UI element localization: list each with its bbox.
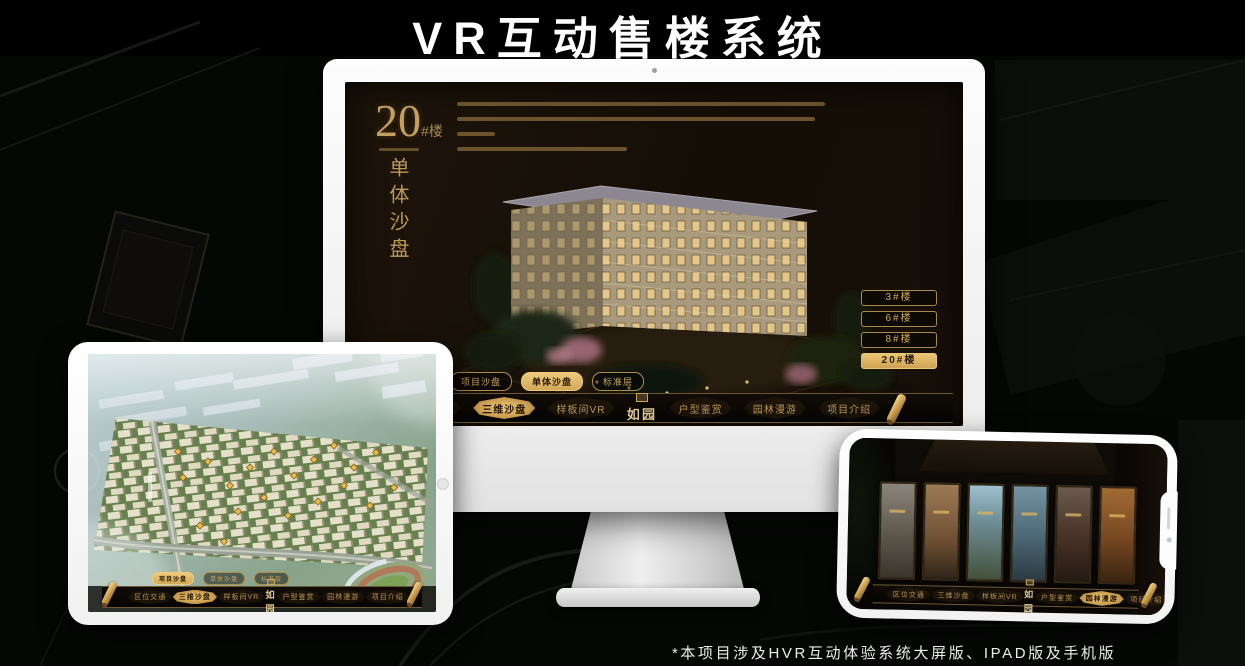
tablet-tab-single-sandtable[interactable]: 单体沙盘 [203,572,245,585]
tab-project-sandtable[interactable]: 项目沙盘 [450,372,512,391]
tablet-nav-showroom-vr[interactable]: 样板间VR [217,590,265,605]
monitor-stand-base [556,588,760,607]
nav-unit-gallery[interactable]: 户型鉴赏 [670,397,732,419]
brand-logo: 如园 [627,393,658,422]
interior-ceiling-illustration [919,439,1110,475]
phone-navbar: 区位交通 三维沙盘 样板间VR 如园 户型鉴赏 园林漫游 项目介绍 [872,584,1138,609]
tablet-brand-logo: 如园 [266,579,277,612]
scene-card-4-label [1021,512,1037,515]
building-selector: 3#楼 6#楼 8#楼 20#楼 [861,290,937,374]
stage: VR互动售楼系统 [0,0,1245,666]
building-button-6[interactable]: 6#楼 [861,311,937,327]
tab-standard-floor[interactable]: 标准层 [592,372,644,391]
phone-logo-text: 如园 [1024,586,1035,614]
building-button-3[interactable]: 3#楼 [861,290,937,306]
tablet-tab-project-sandtable[interactable]: 项目沙盘 [152,572,194,585]
scene-card-6[interactable] [1098,487,1135,584]
description-text-lines [457,102,825,162]
tablet-navbar: 区位交通 三维沙盘 样板间VR 如园 户型鉴赏 园林漫游 项目介绍 [102,586,422,608]
building-number-suffix: #楼 [421,123,443,139]
building-button-8[interactable]: 8#楼 [861,332,937,348]
monitor-stand-neck [570,511,745,593]
tablet-logo-seal-icon [267,579,275,585]
logo-seal-icon [636,393,648,402]
phone-camera-dot [1166,537,1171,542]
scroll-handle-icon[interactable] [886,392,907,424]
scene-card-gallery [847,482,1167,585]
heading-vertical-title: 单体沙盘 [383,157,412,277]
scene-card-5[interactable] [1054,486,1091,583]
tablet-nav-3d-sandtable[interactable]: 三维沙盘 [173,590,218,605]
scene-card-3[interactable] [966,484,1003,581]
scene-card-5-label [1065,513,1081,516]
heading-english-caption [379,148,419,151]
scene-card-1-label [889,510,905,513]
building-number: 20 [375,95,421,146]
phone-speaker-slit [1167,507,1170,529]
nav-garden-roam[interactable]: 园林漫游 [744,397,806,419]
footnote: *本项目涉及HVR互动体验系统大屏版、IPAD版及手机版 [672,642,1116,663]
tab-single-sandtable[interactable]: 单体沙盘 [521,372,583,391]
scene-card-1[interactable] [878,482,915,579]
phone-nav-unit-gallery[interactable]: 户型鉴赏 [1035,590,1080,606]
page-title: VR互动售楼系统 [0,2,1245,67]
scene-card-2-label [933,510,949,513]
phone-nav-showroom-vr[interactable]: 样板间VR [976,588,1025,604]
tablet-nav-location-traffic[interactable]: 区位交通 [128,590,173,605]
phone-nav-3d-sandtable[interactable]: 三维沙盘 [931,587,976,603]
tablet-device: 项目沙盘 单体沙盘 标准层 区位交通 三维沙盘 样板间VR 如园 户型鉴赏 园林… [68,342,453,625]
logo-text: 如园 [627,404,658,423]
monitor-sub-tabs: 项目沙盘 单体沙盘 标准层 [450,372,644,391]
nav-3d-sandtable[interactable]: 三维沙盘 [473,397,535,419]
phone-device: 区位交通 三维沙盘 样板间VR 如园 户型鉴赏 园林漫游 项目介绍 [836,428,1178,624]
tablet-screen: 项目沙盘 单体沙盘 标准层 区位交通 三维沙盘 样板间VR 如园 户型鉴赏 园林… [88,354,436,612]
phone-nav-garden-roam[interactable]: 园林漫游 [1079,591,1124,607]
tablet-home-button[interactable] [437,478,449,490]
watermark-ring [54,448,100,494]
phone-logo-seal-icon [1025,579,1034,585]
tablet-nav-project-intro[interactable]: 项目介绍 [365,590,410,605]
phone-notch [1159,491,1178,569]
scene-card-3-label [977,511,993,514]
tablet-logo-text: 如园 [266,587,277,612]
building-button-20[interactable]: 20#楼 [861,353,937,369]
tablet-nav-garden-roam[interactable]: 园林漫游 [321,590,366,605]
scene-card-2[interactable] [922,483,959,580]
screen-heading: 20#楼 单体沙盘 [375,98,443,277]
scene-card-4[interactable] [1010,485,1047,582]
nav-showroom-vr[interactable]: 样板间VR [548,397,615,419]
phone-brand-logo: 如园 [1024,579,1035,614]
webcam-dot [652,68,657,73]
scene-card-6-label [1109,514,1125,517]
phone-screen: 区位交通 三维沙盘 样板间VR 如园 户型鉴赏 园林漫游 项目介绍 [846,438,1168,616]
tablet-nav-unit-gallery[interactable]: 户型鉴赏 [276,590,321,605]
nav-project-intro[interactable]: 项目介绍 [818,397,880,419]
phone-nav-location-traffic[interactable]: 区位交通 [886,587,931,603]
